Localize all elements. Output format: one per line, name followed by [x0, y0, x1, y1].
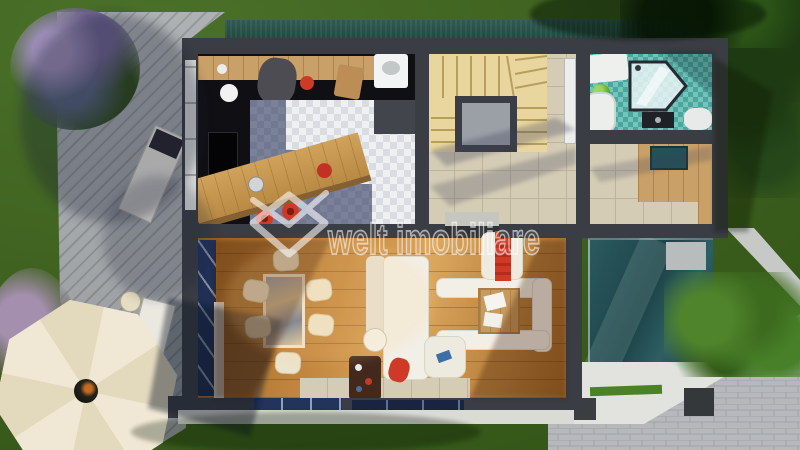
threshold-mat — [445, 212, 499, 226]
wall-mid-left — [196, 224, 445, 238]
bottle-blue — [356, 386, 362, 392]
island-red-bowl — [315, 161, 334, 180]
wall-top — [182, 38, 726, 54]
wall-stairs-left — [415, 52, 429, 224]
red-throw — [495, 231, 511, 281]
bar-stool-2 — [282, 203, 299, 220]
terrace-step — [300, 378, 470, 398]
kitchen-sink — [374, 54, 408, 88]
wall-bath-bottom — [588, 130, 716, 144]
bathroom-vanity — [642, 112, 674, 128]
wall-mid-right — [499, 224, 726, 238]
blue-object — [436, 350, 452, 363]
hall-door-white — [564, 58, 576, 144]
tray-1 — [483, 292, 506, 311]
parasol-pole — [74, 379, 98, 403]
staircase — [429, 54, 547, 152]
living-window-left — [196, 240, 216, 396]
kitchen-window-left — [185, 60, 196, 210]
purple-bush-top-left — [10, 8, 140, 130]
tray-2 — [483, 312, 503, 328]
hall-teal-cabinet — [650, 146, 688, 170]
dining-chair — [241, 278, 270, 304]
vanity-faucet — [655, 117, 661, 123]
sink-basin — [382, 61, 400, 75]
dining-chair — [307, 313, 335, 338]
kitchen-dark-corner — [374, 100, 416, 134]
shower-enclosure — [626, 58, 690, 114]
plate-small — [217, 64, 227, 74]
floor-plan-render: welt imobiliare — [0, 0, 800, 450]
coffee-table — [478, 288, 520, 334]
bottle-white — [355, 364, 362, 371]
dining-chair — [244, 315, 272, 340]
round-side-table — [363, 328, 387, 352]
red-kettle — [300, 76, 314, 90]
window-sill — [214, 302, 224, 398]
dining-chair — [274, 351, 301, 374]
lounger-side-table — [120, 291, 141, 312]
armchair — [481, 232, 523, 280]
bottle-red — [365, 378, 372, 385]
drinks-table — [349, 356, 381, 400]
dining-chair — [272, 248, 299, 272]
toilet — [684, 108, 712, 130]
stair-landing — [462, 103, 510, 145]
plate-large — [220, 84, 238, 102]
paving-mat-2 — [684, 388, 714, 416]
cutting-board — [333, 64, 364, 100]
dining-table — [263, 274, 305, 348]
bush-bottom-right — [664, 272, 800, 377]
ottoman — [424, 336, 466, 378]
concrete-edge-strip — [178, 410, 574, 424]
island-kettle — [246, 175, 266, 195]
wall-stairs-right — [576, 52, 590, 224]
wall-wing-right — [712, 38, 728, 238]
wall-right-living — [566, 226, 582, 414]
